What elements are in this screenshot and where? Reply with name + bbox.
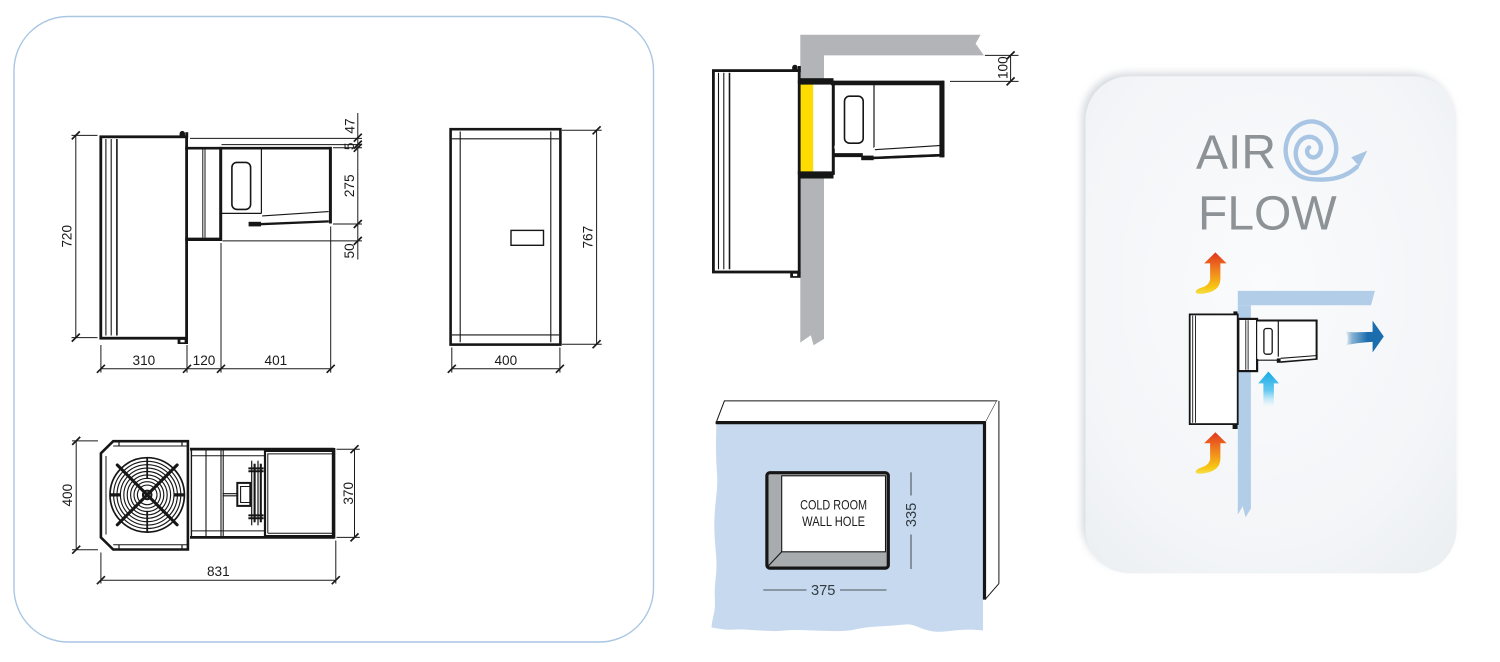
svg-text:AIR: AIR xyxy=(1196,127,1276,180)
svg-text:COLD ROOM: COLD ROOM xyxy=(800,497,867,512)
svg-text:310: 310 xyxy=(133,353,156,368)
svg-text:47: 47 xyxy=(342,118,357,133)
svg-text:50: 50 xyxy=(342,243,357,259)
svg-text:370: 370 xyxy=(341,482,356,505)
svg-text:400: 400 xyxy=(60,483,75,506)
svg-text:401: 401 xyxy=(265,353,288,368)
svg-text:400: 400 xyxy=(494,353,517,368)
svg-text:720: 720 xyxy=(60,225,75,248)
svg-text:5: 5 xyxy=(342,143,357,151)
svg-text:831: 831 xyxy=(207,564,230,579)
svg-text:335: 335 xyxy=(904,503,920,527)
svg-text:120: 120 xyxy=(193,353,216,368)
svg-text:100: 100 xyxy=(996,56,1011,79)
svg-text:FLOW: FLOW xyxy=(1198,188,1337,241)
svg-text:767: 767 xyxy=(580,226,595,249)
svg-text:WALL HOLE: WALL HOLE xyxy=(802,514,865,529)
svg-text:275: 275 xyxy=(342,174,357,197)
svg-text:375: 375 xyxy=(811,583,835,599)
